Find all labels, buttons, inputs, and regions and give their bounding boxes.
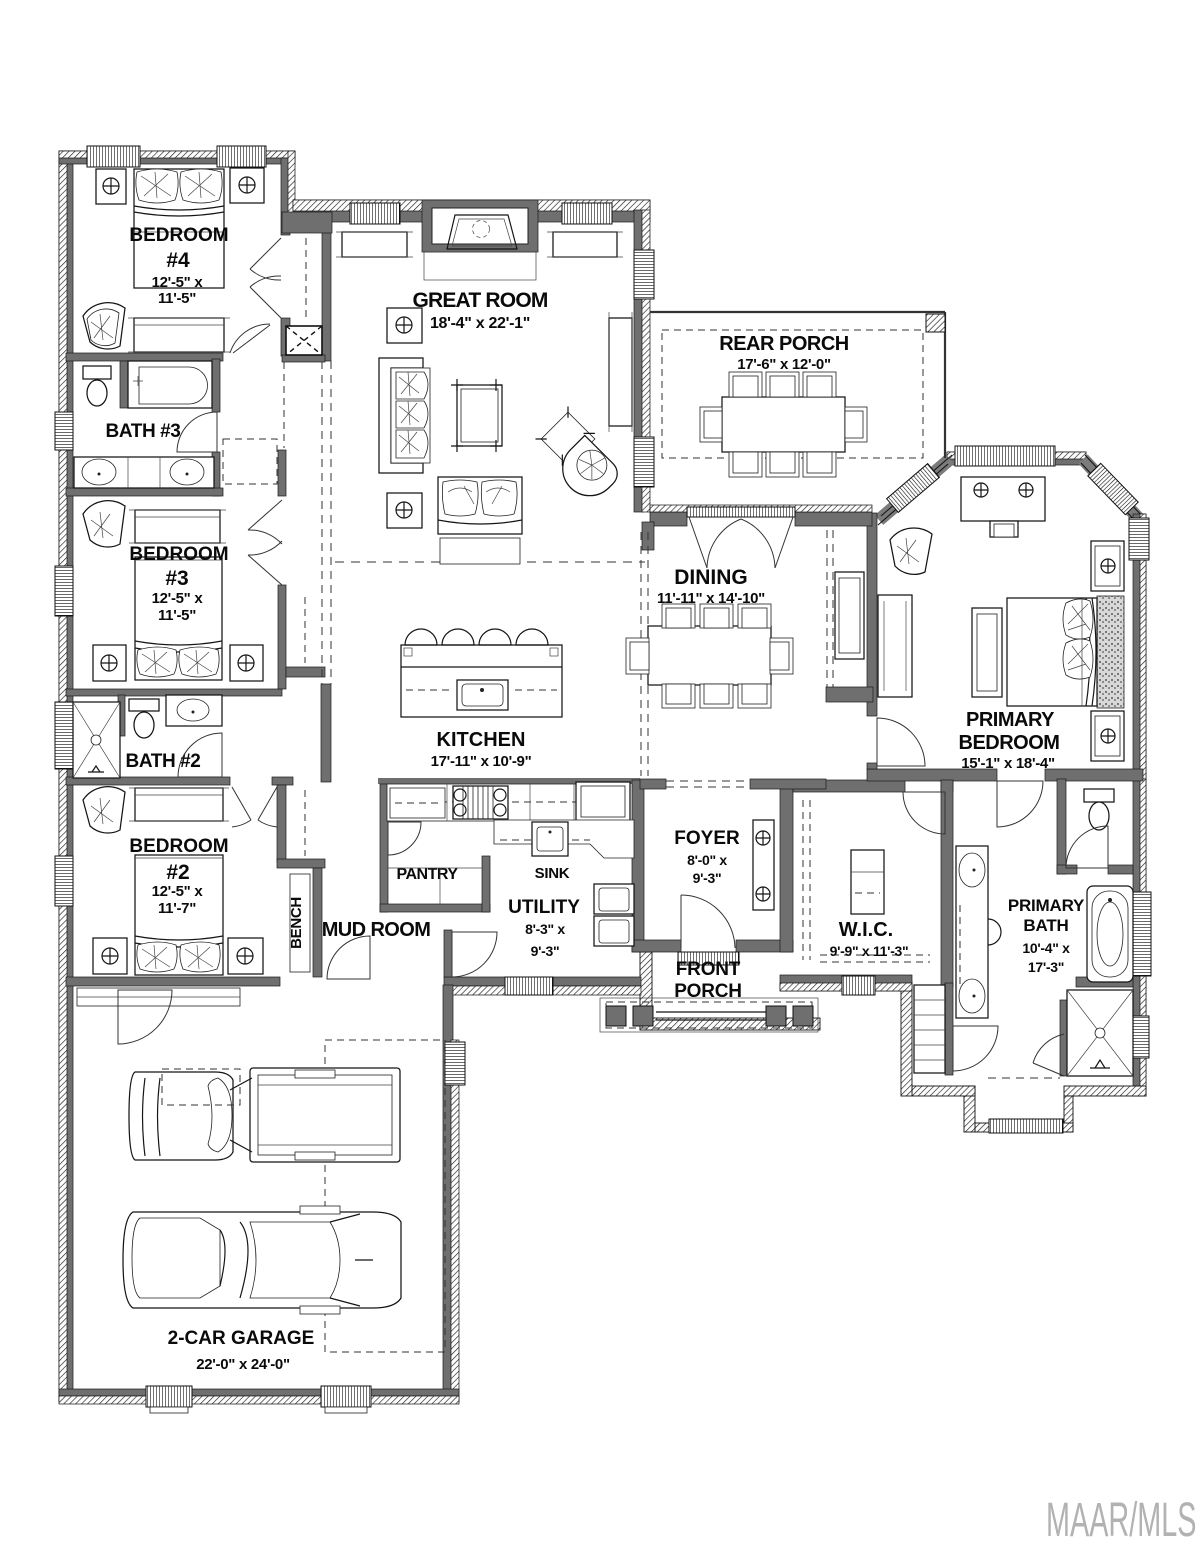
svg-text:11'-5": 11'-5"	[158, 290, 196, 307]
svg-text:BEDROOM: BEDROOM	[129, 544, 228, 565]
svg-text:MAAR/MLS: MAAR/MLS	[1046, 1494, 1196, 1547]
svg-text:12'-5" x: 12'-5" x	[152, 274, 204, 291]
svg-text:#4: #4	[166, 249, 190, 272]
svg-text:FRONT: FRONT	[676, 959, 741, 980]
svg-text:KITCHEN: KITCHEN	[437, 729, 526, 751]
svg-text:BENCH: BENCH	[288, 897, 305, 949]
svg-text:REAR PORCH: REAR PORCH	[719, 333, 849, 355]
svg-text:9'-3": 9'-3"	[693, 870, 722, 886]
svg-text:GREAT ROOM: GREAT ROOM	[412, 289, 547, 312]
svg-text:8'-0" x: 8'-0" x	[687, 852, 727, 868]
svg-text:BATH #2: BATH #2	[126, 751, 201, 772]
svg-text:PRIMARY: PRIMARY	[966, 709, 1055, 731]
svg-text:17'-3": 17'-3"	[1028, 959, 1064, 975]
svg-text:W.I.C.: W.I.C.	[839, 919, 893, 941]
svg-text:PANTRY: PANTRY	[397, 866, 459, 883]
svg-text:8'-3" x: 8'-3" x	[525, 921, 565, 937]
svg-text:UTILITY: UTILITY	[508, 897, 580, 918]
svg-text:15'-1" x 18'-4": 15'-1" x 18'-4"	[961, 755, 1055, 772]
svg-text:#3: #3	[165, 567, 188, 590]
svg-text:PRIMARY: PRIMARY	[1008, 896, 1085, 915]
svg-text:9'-3": 9'-3"	[531, 943, 560, 959]
svg-text:12'-5" x: 12'-5" x	[152, 590, 204, 607]
svg-text:17'-6" x 12'-0": 17'-6" x 12'-0"	[737, 356, 831, 373]
svg-text:10'-4" x: 10'-4" x	[1022, 940, 1070, 956]
svg-text:PORCH: PORCH	[674, 981, 742, 1002]
svg-text:BATH: BATH	[1023, 916, 1068, 935]
svg-text:11'-11" x 14'-10": 11'-11" x 14'-10"	[657, 590, 765, 607]
svg-text:17'-11" x 10'-9": 17'-11" x 10'-9"	[431, 753, 532, 770]
svg-text:11'-5": 11'-5"	[158, 607, 196, 624]
svg-text:11'-7": 11'-7"	[158, 900, 196, 917]
svg-text:18'-4" x 22'-1": 18'-4" x 22'-1"	[430, 315, 530, 332]
svg-text:BATH #3: BATH #3	[106, 421, 181, 442]
svg-text:FOYER: FOYER	[674, 828, 740, 849]
svg-text:DINING: DINING	[674, 566, 748, 589]
svg-text:22'-0" x 24'-0": 22'-0" x 24'-0"	[196, 1356, 290, 1373]
svg-text:9'-9" x 11'-3": 9'-9" x 11'-3"	[830, 943, 909, 959]
svg-text:SINK: SINK	[535, 865, 570, 882]
svg-text:BEDROOM: BEDROOM	[959, 732, 1060, 754]
svg-text:12'-5" x: 12'-5" x	[152, 883, 204, 900]
svg-text:BEDROOM: BEDROOM	[129, 225, 228, 246]
svg-text:2-CAR GARAGE: 2-CAR GARAGE	[168, 1328, 315, 1349]
svg-text:MUD ROOM: MUD ROOM	[322, 919, 431, 941]
svg-text:#2: #2	[166, 861, 189, 884]
svg-text:BEDROOM: BEDROOM	[129, 836, 228, 857]
